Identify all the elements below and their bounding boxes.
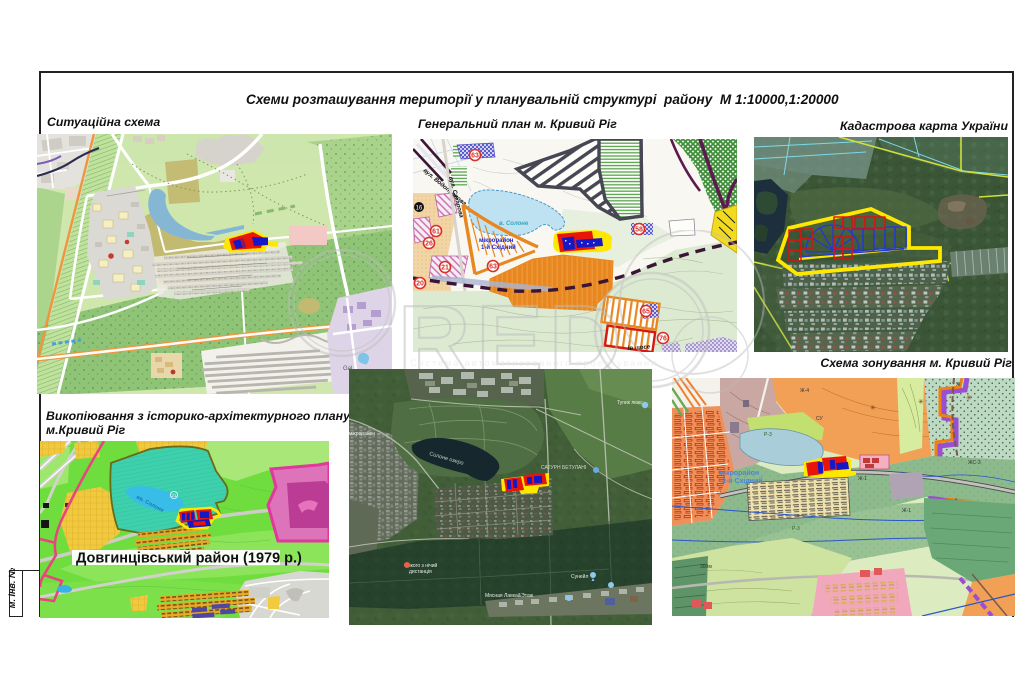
svg-text:300м: 300м xyxy=(700,564,712,570)
svg-text:Р-3: Р-3 xyxy=(764,432,772,438)
svg-text:16: 16 xyxy=(416,206,423,212)
svg-text:Ж-1: Ж-1 xyxy=(858,476,867,482)
svg-text:мікрорайон: мікрорайон xyxy=(719,469,759,477)
svg-text:Система автоматизованого проек: Система автоматизованого проектування xyxy=(410,358,658,368)
svg-text:ЖС-3: ЖС-3 xyxy=(968,460,981,466)
svg-text:мікрорайон: мікрорайон xyxy=(349,430,375,437)
svg-text:Ж-1: Ж-1 xyxy=(902,508,911,514)
svg-text:Сунейл: Сунейл xyxy=(571,573,588,580)
svg-text:СУ: СУ xyxy=(816,416,823,422)
svg-text:в. Солоне: в. Солоне xyxy=(499,221,529,227)
svg-text:САТУРН БЕТУЛАНІ: САТУРН БЕТУЛАНІ xyxy=(541,465,586,471)
svg-text:✳: ✳ xyxy=(918,398,924,406)
svg-text:Довгинцівський район (1979 р.): Довгинцівський район (1979 р.) xyxy=(76,551,302,567)
svg-text:63: 63 xyxy=(471,153,479,160)
svg-text:✳: ✳ xyxy=(870,404,876,412)
svg-text:✳: ✳ xyxy=(966,394,972,402)
svg-text:Мясная Лавка&Этаж: Мясная Лавка&Этаж xyxy=(485,593,534,599)
svg-text:21: 21 xyxy=(171,493,177,498)
svg-text:Ж: Ж xyxy=(956,382,961,388)
svg-text:Р-3: Р-3 xyxy=(792,526,800,532)
svg-text:1-й Східний: 1-й Східний xyxy=(722,477,763,485)
svg-text:дистанція: дистанція xyxy=(409,569,432,575)
svg-text:Тупик люкс: Тупик люкс xyxy=(617,400,643,406)
